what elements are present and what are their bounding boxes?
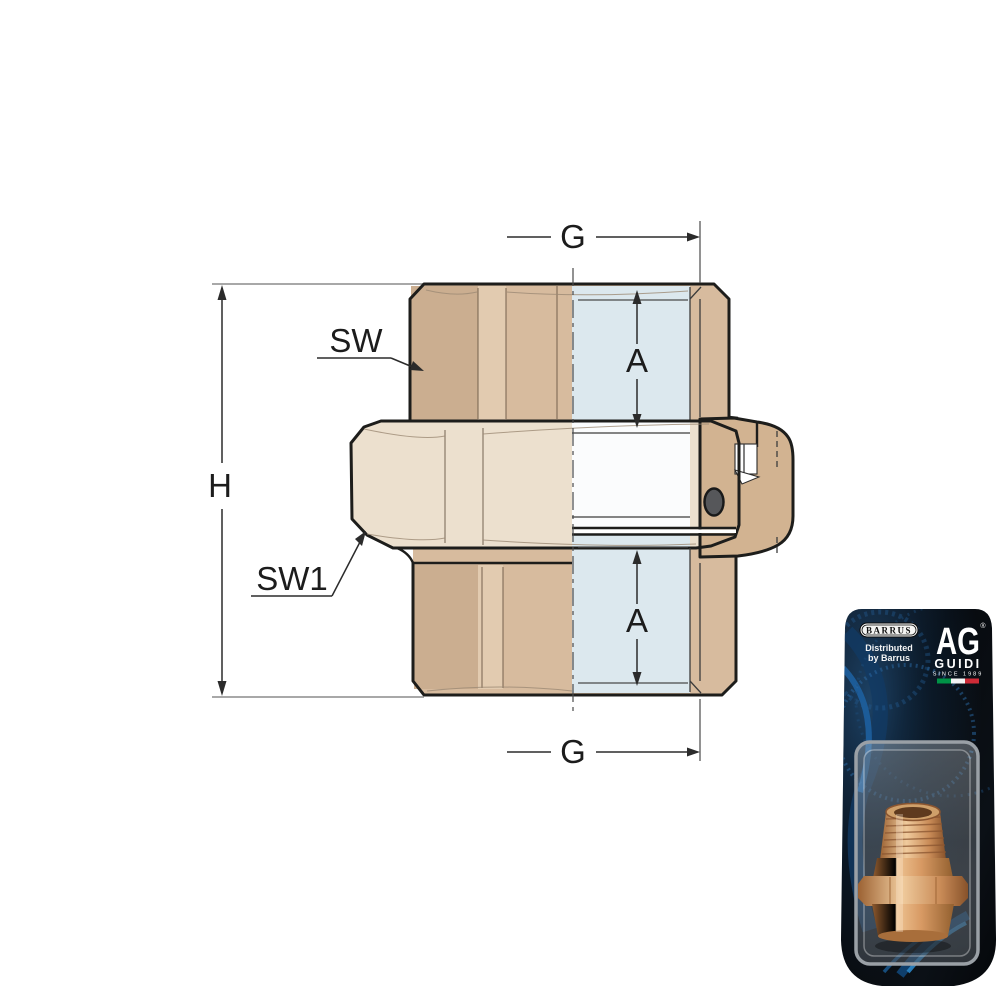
collar-hex	[873, 858, 953, 878]
technical-drawing-canvas: G G H A	[0, 0, 1000, 1000]
callout-sw1: SW1	[251, 531, 366, 597]
guidi-logo: AG ® GUIDI SINCE 1989	[933, 621, 987, 684]
distributed-line2: by Barrus	[868, 653, 910, 663]
guidi-tagline: SINCE 1989	[933, 672, 984, 678]
guidi-name: GUIDI	[934, 657, 981, 671]
label-g-top: G	[560, 218, 586, 255]
label-g-bottom: G	[560, 733, 586, 770]
blister-pack	[856, 742, 978, 964]
fitting-upper-body	[410, 284, 738, 421]
barrus-logo-text: BARRUS	[866, 626, 912, 636]
dimension-g-top: G	[507, 218, 700, 283]
italian-flag	[937, 679, 979, 684]
distributed-line1: Distributed	[865, 643, 913, 653]
label-h: H	[208, 467, 232, 504]
registered-mark: ®	[980, 622, 986, 630]
specular-highlight	[896, 814, 903, 932]
label-a-bottom: A	[626, 602, 648, 639]
callout-sw: SW	[317, 322, 424, 371]
dimension-h: H	[208, 285, 232, 696]
fitting-bottom	[878, 930, 948, 942]
product-packaging: BARRUS Distributed by Barrus AG ® GUIDI …	[832, 600, 1000, 1000]
union-nut-product	[858, 876, 968, 906]
fitting-lower-body	[413, 548, 736, 695]
barrus-logo: BARRUS	[860, 623, 918, 637]
union-fitting-diagram: G G H A	[208, 218, 793, 770]
label-sw: SW	[329, 322, 383, 359]
dimension-g-bottom: G	[507, 699, 700, 770]
o-ring-seal	[705, 489, 724, 516]
screenshot-root: G G H A	[0, 0, 1000, 1000]
label-a-top: A	[626, 342, 648, 379]
label-sw1: SW1	[256, 560, 328, 597]
nut-body-fillet	[397, 548, 413, 563]
section-area-middle	[572, 423, 690, 535]
